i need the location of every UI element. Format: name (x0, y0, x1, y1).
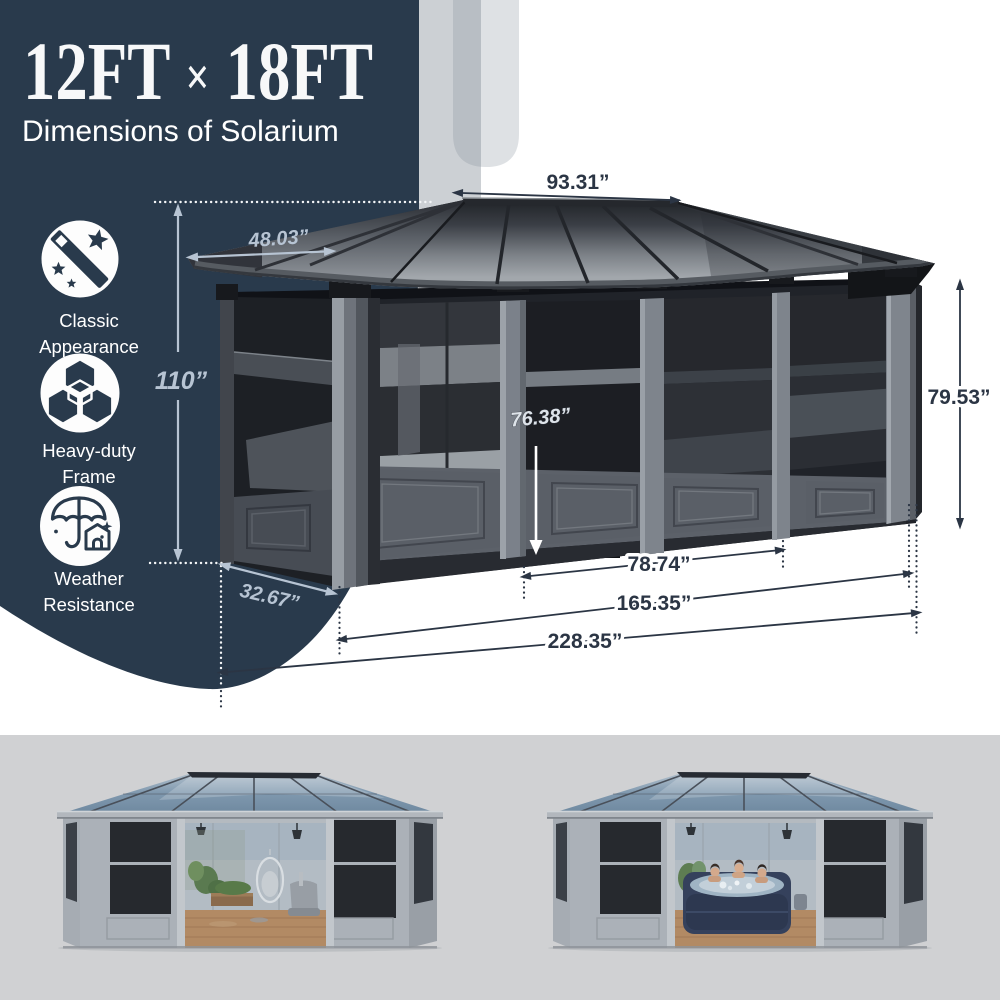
svg-text:78.74”: 78.74” (627, 553, 690, 576)
svg-text:228.35”: 228.35” (548, 630, 623, 653)
svg-text:Dimensions of Solarium: Dimensions of Solarium (22, 115, 339, 148)
svg-text:Appearance: Appearance (39, 336, 139, 357)
svg-text:93.31”: 93.31” (546, 171, 609, 194)
svg-text:79.53”: 79.53” (927, 386, 990, 409)
svg-text:Heavy-duty: Heavy-duty (42, 440, 136, 461)
svg-text:Frame: Frame (62, 466, 115, 487)
svg-text:Classic: Classic (59, 310, 119, 331)
svg-text:165.35”: 165.35” (617, 592, 692, 615)
svg-text:48.03”: 48.03” (247, 226, 309, 252)
svg-text:Weather: Weather (54, 568, 124, 589)
svg-text:110”: 110” (155, 367, 208, 395)
svg-text:Resistance: Resistance (43, 594, 135, 615)
